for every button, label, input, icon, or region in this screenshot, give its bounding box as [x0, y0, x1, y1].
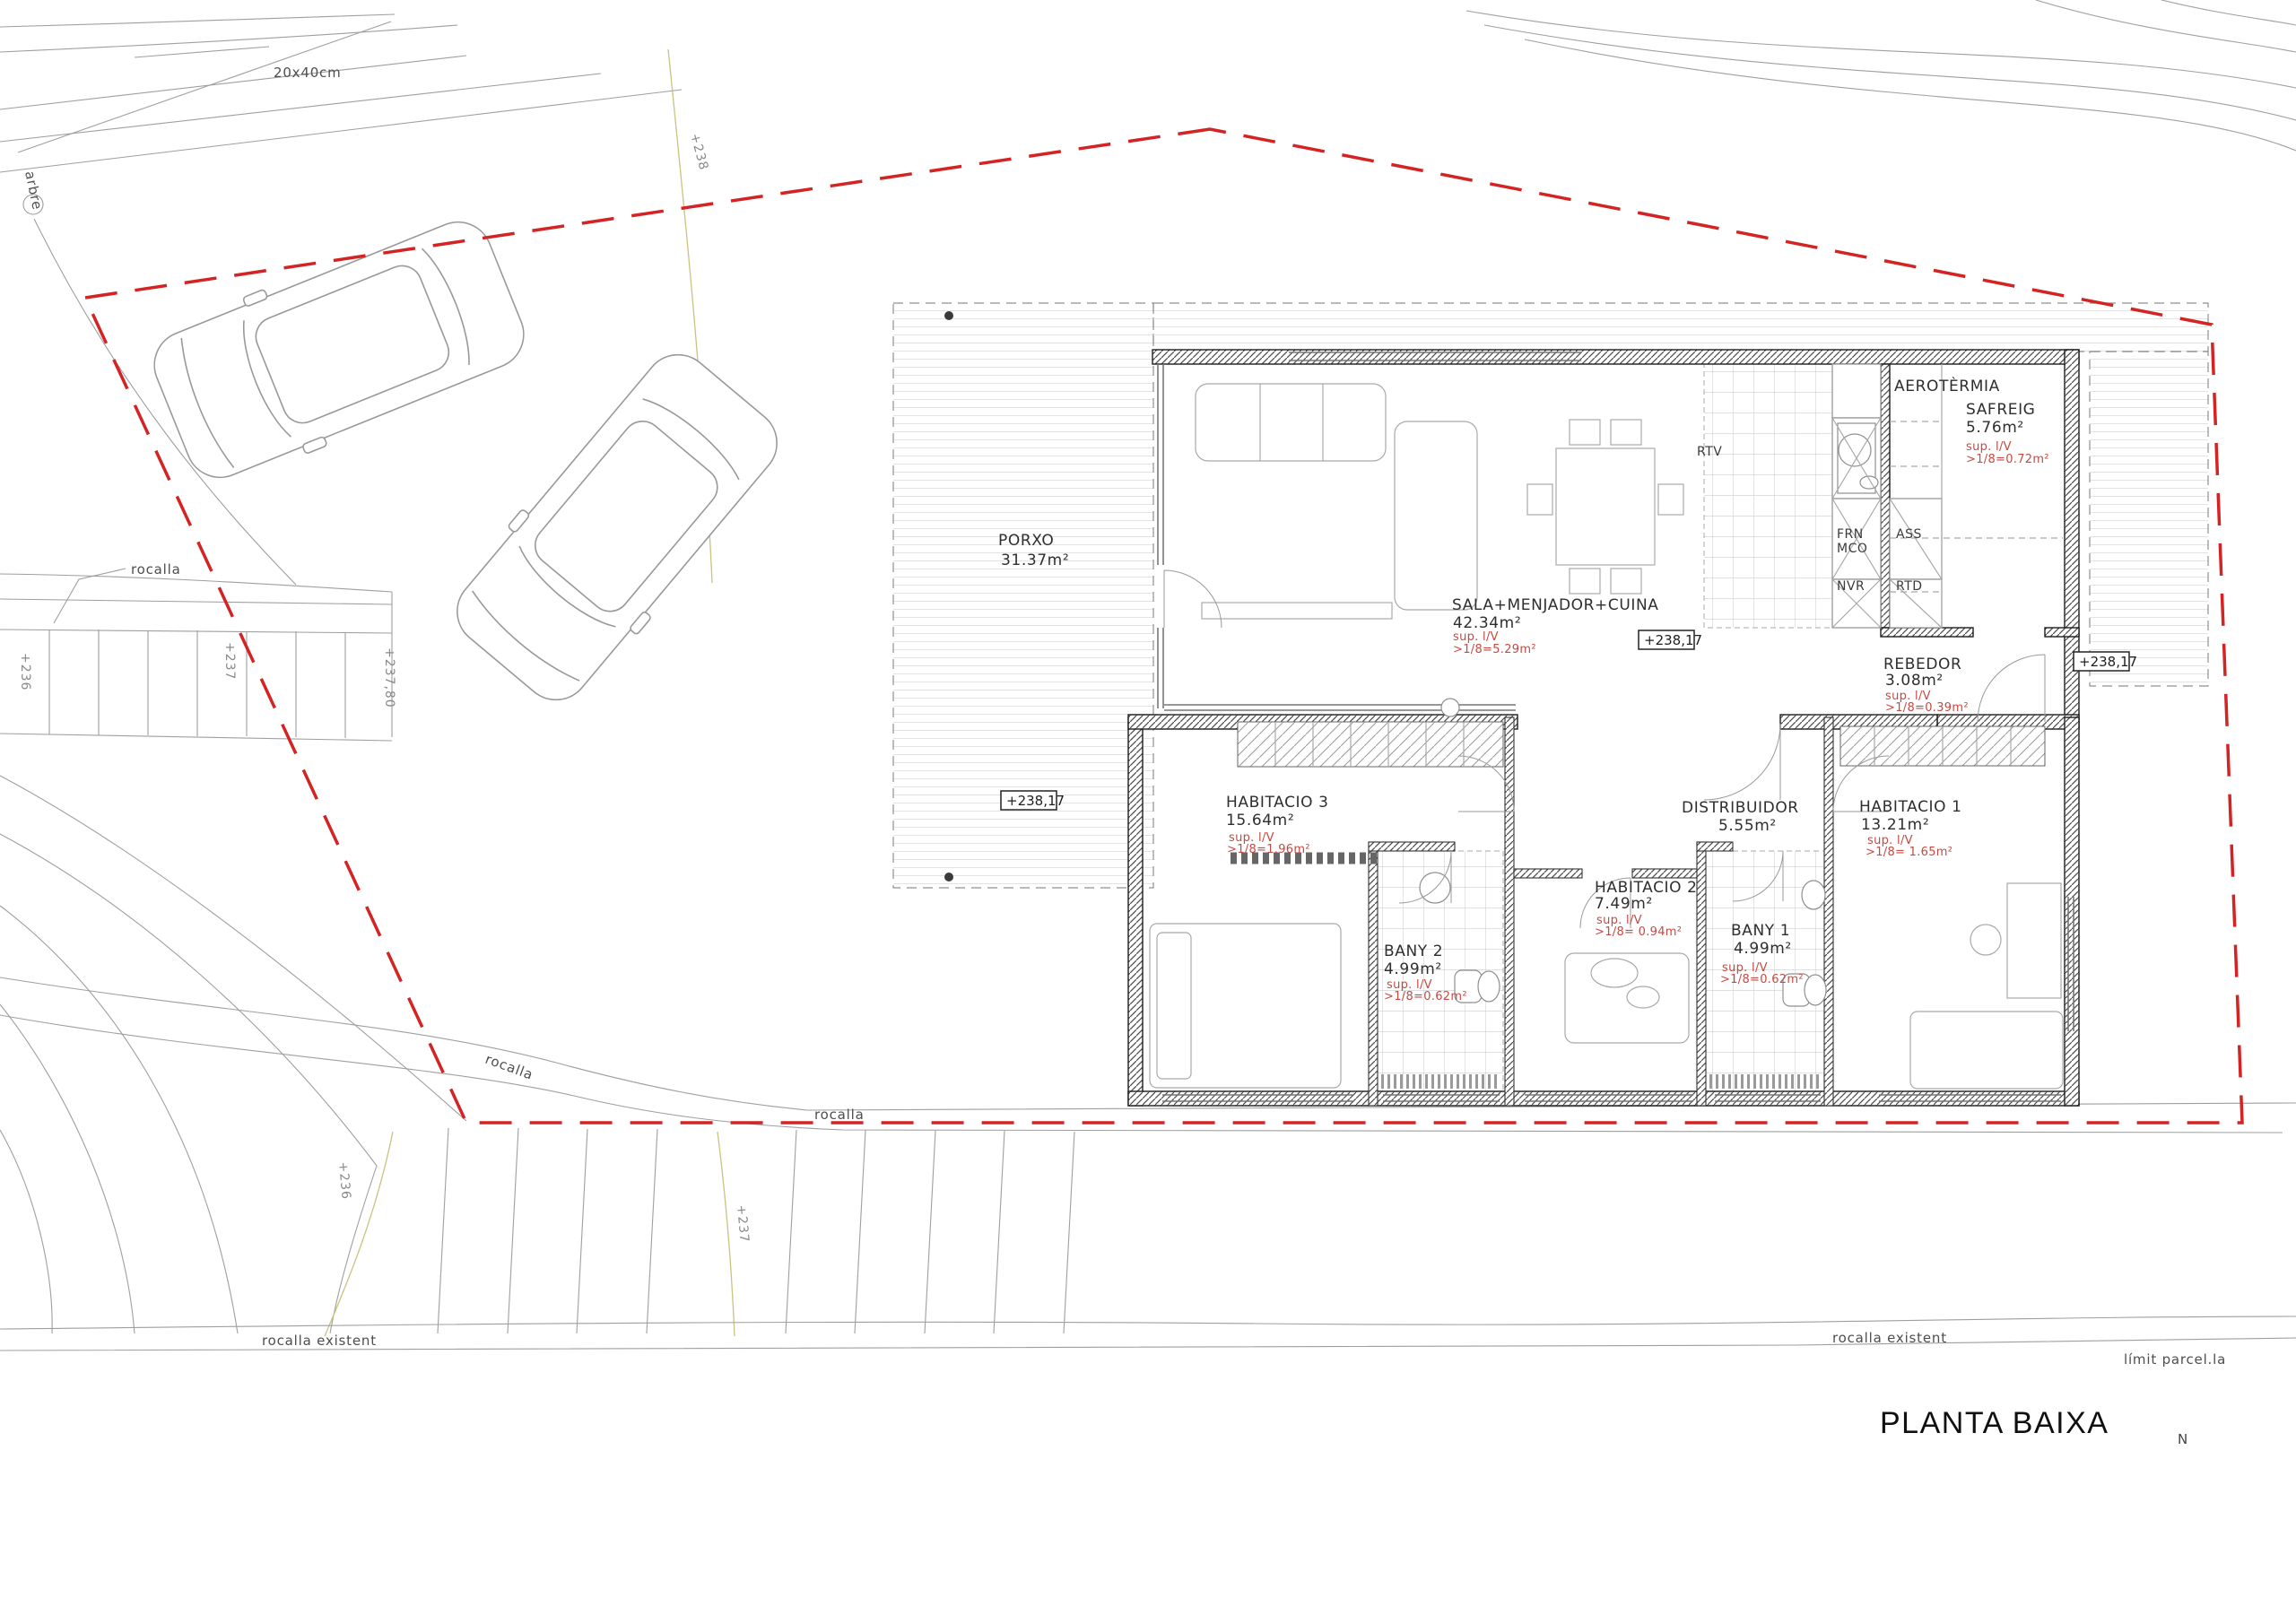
kitchen-tiles [1704, 364, 1832, 628]
contour-237-stairs: +237 [222, 642, 237, 680]
room-safreig-name: SAFREIG [1966, 401, 2035, 419]
cars [141, 204, 796, 719]
room-aerotermia-name: AEROTÈRMIA [1894, 376, 2000, 395]
roof-overhang [893, 303, 2208, 888]
bany2-basin [1420, 873, 1450, 903]
limit-parcella-label: límit parcel.la [2124, 1351, 2226, 1368]
car-2 [437, 335, 796, 718]
room-distribuidor-area: 5.55m² [1718, 817, 1777, 835]
room-rebedor-name: REBEDOR [1883, 656, 1961, 673]
rocalla-leader-label: rocalla [131, 561, 181, 578]
wall-bany1-hab1 [1824, 717, 1833, 1106]
wall-center-west [1505, 717, 1514, 1106]
room-hab2-sup2: >1/8= 0.94m² [1595, 925, 1682, 939]
kitchen-back-wall [1881, 364, 1890, 628]
room-bany2-name: BANY 2 [1384, 942, 1443, 960]
label-rtd: RTD [1896, 579, 1923, 594]
east-wall-lower [2065, 717, 2079, 1106]
room-porxo-area: 31.37m² [1001, 551, 1069, 569]
wall-bany1-north [1697, 842, 1733, 851]
hab2-rug [1565, 953, 1689, 1043]
rocalla-slope-2: rocalla [814, 1107, 865, 1123]
room-hab1-area: 13.21m² [1861, 816, 1929, 834]
safreig-south-wall-a [1881, 628, 1973, 637]
block-size-label: 20x40cm [274, 65, 342, 81]
room-safreig-sup2: >1/8=0.72m² [1966, 453, 2049, 466]
room-hab2-area: 7.49m² [1595, 895, 1653, 913]
label-nvr: NVR [1837, 579, 1865, 594]
car-1 [141, 204, 536, 495]
west-glass-facade [1158, 364, 1163, 708]
contour-236-slope: +236 [335, 1161, 353, 1201]
room-porxo-name: PORXO [998, 532, 1054, 550]
north-indicator: N [2178, 1431, 2187, 1447]
hab1-desk [1910, 883, 2063, 1089]
svg-text:+238,17: +238,17 [1644, 632, 1702, 648]
room-hab1-name: HABITACIO 1 [1859, 798, 1962, 816]
dining-table [1527, 420, 1683, 594]
contour-237-slope: +237 [734, 1204, 752, 1244]
house [1128, 350, 2079, 1106]
room-hab3-name: HABITACIO 3 [1226, 794, 1329, 812]
downspout-dot [944, 873, 953, 881]
hab3-bed [1150, 924, 1341, 1088]
room-safreig-sup1: sup. l/V [1966, 440, 2012, 454]
south-wall-lower [1128, 1091, 2079, 1106]
room-bany1-name: BANY 1 [1731, 922, 1790, 940]
title-block: PLANTA BAIXA N [1880, 1406, 2187, 1447]
room-bany2-sup2: >1/8=0.62m² [1384, 990, 1467, 1003]
contour-236-stairs: +236 [18, 653, 32, 690]
level-marker-porch: +238,17 [1001, 791, 1065, 810]
sofa [1196, 384, 1477, 619]
label-frn: FRN [1837, 527, 1864, 542]
column [1441, 699, 1459, 716]
room-bany2-area: 4.99m² [1384, 960, 1442, 978]
label-mco: MCO [1837, 542, 1867, 556]
south-glass-sala [1164, 705, 1516, 710]
contour-23780-stairs: +237,80 [382, 647, 396, 708]
terrace-stairs [0, 569, 392, 741]
room-bany1-sup2: >1/8=0.62m² [1720, 973, 1804, 986]
room-distribuidor-name: DISTRIBUIDOR [1682, 799, 1799, 817]
wall-hab2-north-b [1632, 869, 1704, 878]
room-hab3-area: 15.64m² [1226, 812, 1294, 829]
room-bany1-area: 4.99m² [1734, 940, 1792, 958]
sheet-title: PLANTA BAIXA [1880, 1406, 2109, 1440]
room-sala-name: SALA+MENJADOR+CUINA [1452, 596, 1659, 614]
room-hab2-name: HABITACIO 2 [1595, 879, 1698, 897]
downspout-dot [944, 311, 953, 320]
room-rebedor-sup2: >1/8=0.39m² [1885, 701, 1969, 715]
rocalla-existent-right: rocalla existent [1832, 1330, 1947, 1346]
room-hab1-sup2: >1/8= 1.65m² [1865, 846, 1952, 859]
plan-canvas: 20x40cm arbre rocalla +236 +237 +237,80 … [0, 0, 2296, 1624]
room-sala-sup1: sup. l/V [1453, 630, 1499, 644]
safreig-south-wall-b [2045, 628, 2079, 637]
bany1-basin [1802, 881, 1825, 909]
level-marker-kitchen: +238,17 [1639, 630, 1702, 649]
arbre-label: arbre [22, 169, 46, 212]
contour-238-label: +238 [687, 132, 710, 172]
svg-text:+238,17: +238,17 [1006, 793, 1065, 809]
svg-text:+238,17: +238,17 [2079, 654, 2137, 670]
rocalla-existent-left: rocalla existent [262, 1333, 377, 1349]
site-contours-top-right [1466, 0, 2296, 151]
floor-plan-sheet: 20x40cm arbre rocalla +236 +237 +237,80 … [0, 0, 2296, 1624]
level-marker-entry: +238,17 [2074, 652, 2137, 671]
east-wall-upper [2065, 350, 2079, 729]
room-safreig-area: 5.76m² [1966, 419, 2024, 437]
wall-hab3-bany2 [1369, 842, 1378, 1106]
wall-bany2-north [1369, 842, 1455, 851]
label-rtv: RTV [1697, 445, 1722, 459]
room-sala-sup2: >1/8=5.29m² [1453, 643, 1536, 656]
wall-hab2-bany1 [1697, 842, 1706, 1106]
room-labels: PORXO 31.37m² SALA+MENJADOR+CUINA 42.34m… [998, 376, 2049, 1003]
room-hab3-sup2: >1/8=1.96m² [1227, 843, 1310, 856]
west-wall-lower [1128, 717, 1143, 1106]
room-rebedor-area: 3.08m² [1885, 672, 1944, 690]
wall-hab2-north [1514, 869, 1582, 878]
room-sala-area: 42.34m² [1453, 614, 1521, 632]
label-ass: ASS [1896, 527, 1922, 542]
